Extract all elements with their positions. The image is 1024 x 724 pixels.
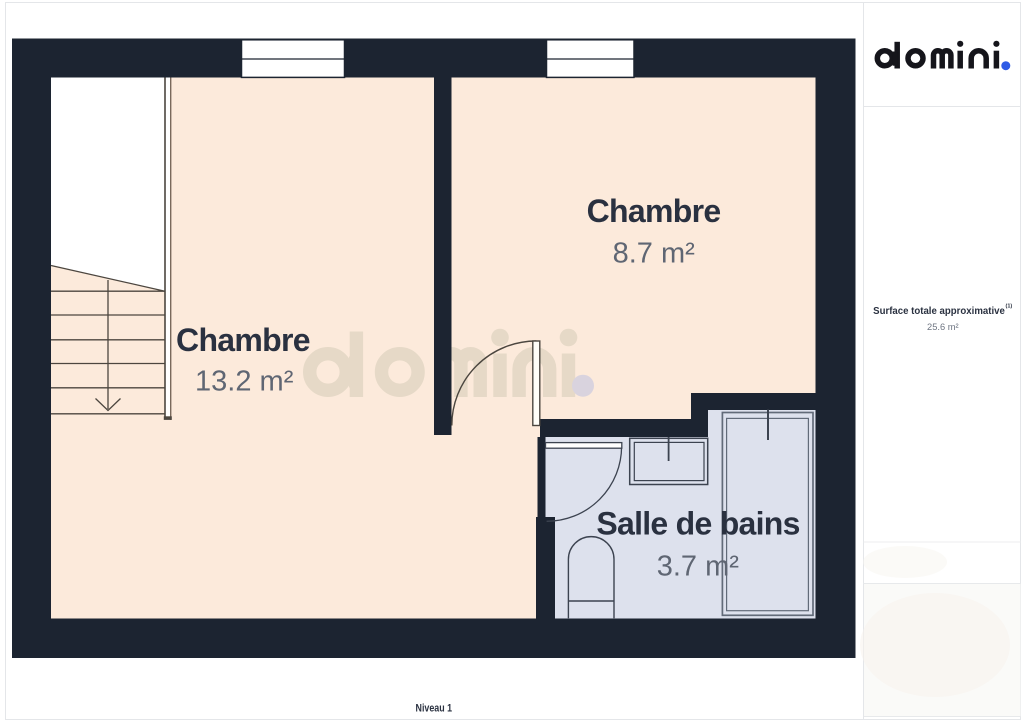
svg-text:(1): (1) [1006, 304, 1013, 310]
svg-text:Salle de bains: Salle de bains [596, 506, 800, 542]
svg-text:8.7 m²: 8.7 m² [613, 238, 696, 270]
svg-text:Surface totale approximative: Surface totale approximative [873, 306, 1005, 317]
svg-text:Niveau 1: Niveau 1 [416, 702, 453, 714]
svg-text:13.2 m²: 13.2 m² [195, 366, 294, 398]
svg-text:25.6 m²: 25.6 m² [927, 322, 959, 332]
svg-text:Chambre: Chambre [176, 322, 310, 358]
svg-text:Chambre: Chambre [587, 193, 722, 229]
svg-text:3.7 m²: 3.7 m² [657, 551, 740, 583]
